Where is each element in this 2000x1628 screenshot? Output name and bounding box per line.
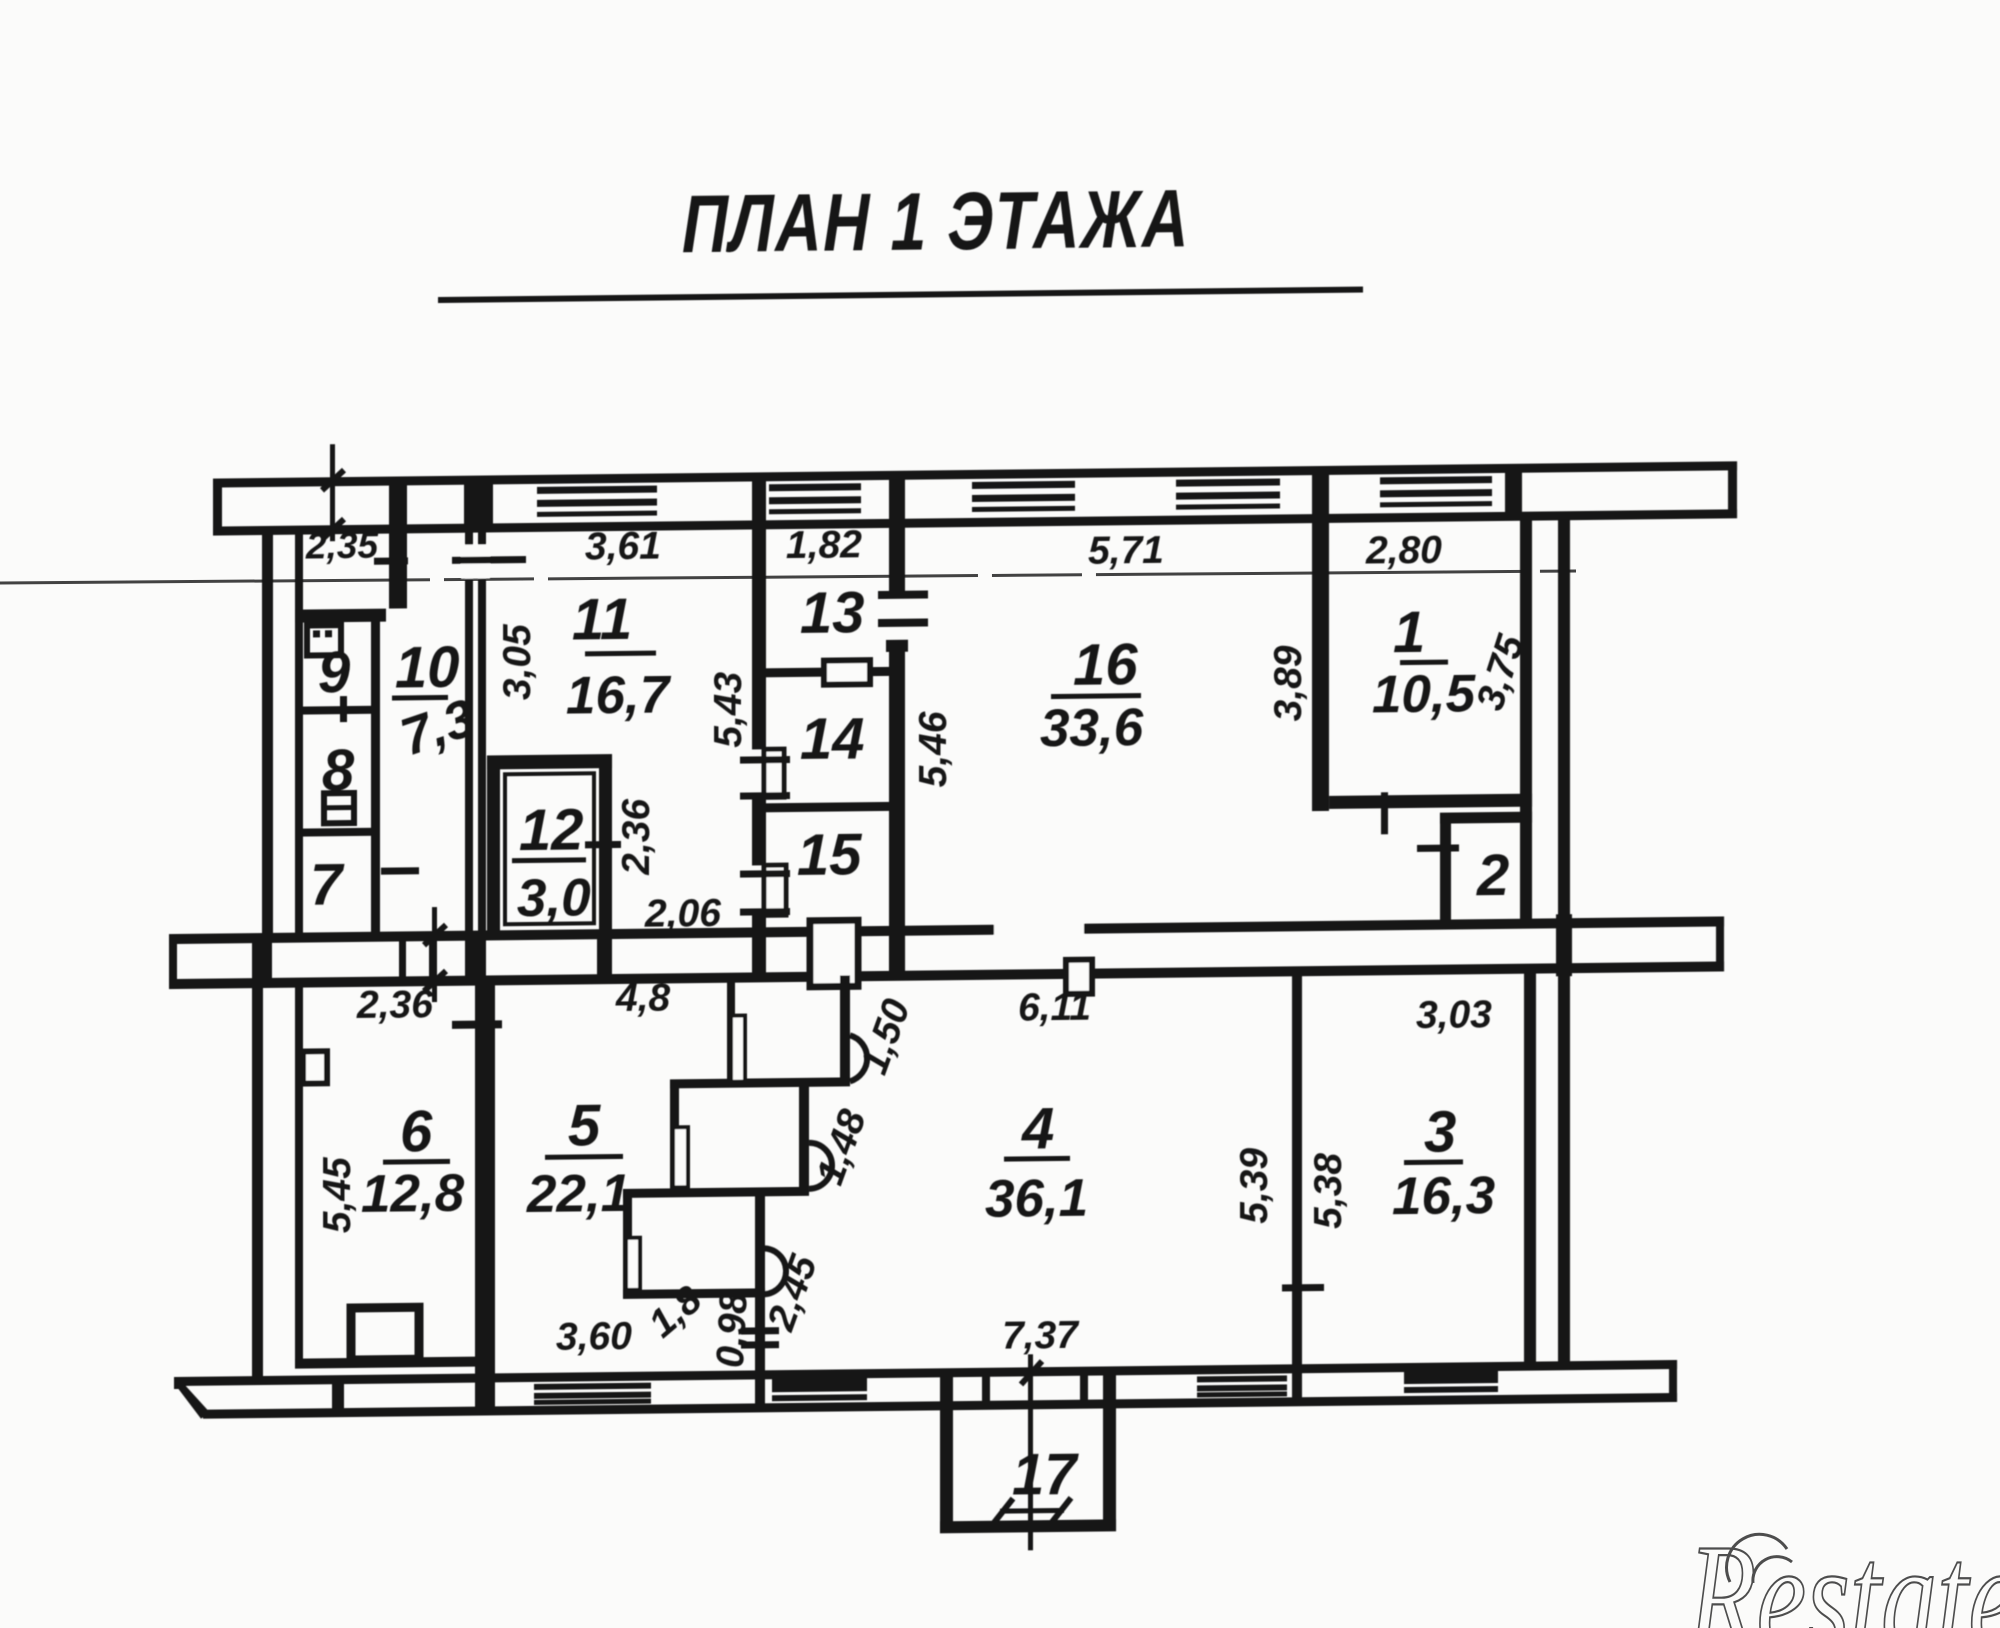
svg-text:17: 17 (1012, 1442, 1079, 1508)
svg-text:ПЛАН 1 ЭТАЖА: ПЛАН 1 ЭТАЖА (682, 174, 1190, 271)
svg-text:7: 7 (310, 852, 345, 917)
svg-text:16,7: 16,7 (566, 665, 672, 725)
svg-text:15: 15 (797, 822, 862, 888)
svg-text:16: 16 (1073, 632, 1138, 698)
svg-text:12,8: 12,8 (361, 1164, 465, 1224)
svg-text:3: 3 (1424, 1099, 1456, 1164)
svg-text:4,8: 4,8 (615, 976, 671, 1020)
svg-text:5,46: 5,46 (912, 711, 955, 788)
svg-text:13: 13 (800, 580, 865, 646)
svg-text:36,1: 36,1 (985, 1169, 1088, 1229)
svg-text:1,82: 1,82 (786, 523, 862, 567)
svg-text:5,38: 5,38 (1307, 1152, 1350, 1229)
svg-text:3,05: 3,05 (496, 623, 539, 701)
svg-text:5,39: 5,39 (1233, 1147, 1276, 1224)
svg-text:5,45: 5,45 (316, 1156, 359, 1234)
svg-text:9: 9 (318, 640, 350, 705)
svg-text:22,1: 22,1 (526, 1164, 630, 1224)
svg-text:7,37: 7,37 (1002, 1314, 1080, 1358)
svg-text:2: 2 (1476, 843, 1509, 908)
svg-text:3,89: 3,89 (1267, 645, 1310, 722)
svg-text:5,71: 5,71 (1088, 529, 1164, 573)
svg-text:3,03: 3,03 (1416, 993, 1492, 1037)
svg-text:8: 8 (322, 738, 355, 803)
svg-text:33,6: 33,6 (1040, 698, 1144, 758)
svg-text:2,36: 2,36 (615, 798, 658, 876)
svg-text:3,61: 3,61 (585, 525, 661, 569)
svg-text:5: 5 (568, 1093, 601, 1158)
svg-text:0,98: 0,98 (709, 1291, 756, 1369)
svg-text:11: 11 (572, 587, 632, 653)
svg-text:6: 6 (400, 1099, 433, 1164)
svg-text:1: 1 (1393, 600, 1425, 665)
svg-text:10,5: 10,5 (1372, 664, 1477, 724)
svg-text:10: 10 (395, 635, 460, 701)
svg-text:3,0: 3,0 (517, 868, 591, 928)
svg-text:2,80: 2,80 (1365, 529, 1442, 573)
svg-text:2,36: 2,36 (356, 983, 433, 1027)
svg-text:12: 12 (519, 797, 584, 863)
svg-text:Restate: Restate (1687, 1513, 2000, 1628)
svg-text:2,06: 2,06 (644, 892, 721, 936)
svg-text:3,60: 3,60 (556, 1315, 632, 1359)
svg-text:2,35: 2,35 (305, 525, 379, 567)
svg-text:5,43: 5,43 (707, 671, 750, 748)
svg-text:14: 14 (800, 706, 865, 772)
svg-text:4: 4 (1021, 1096, 1054, 1161)
svg-text:6,11: 6,11 (1018, 986, 1091, 1030)
svg-text:16,3: 16,3 (1392, 1166, 1495, 1226)
